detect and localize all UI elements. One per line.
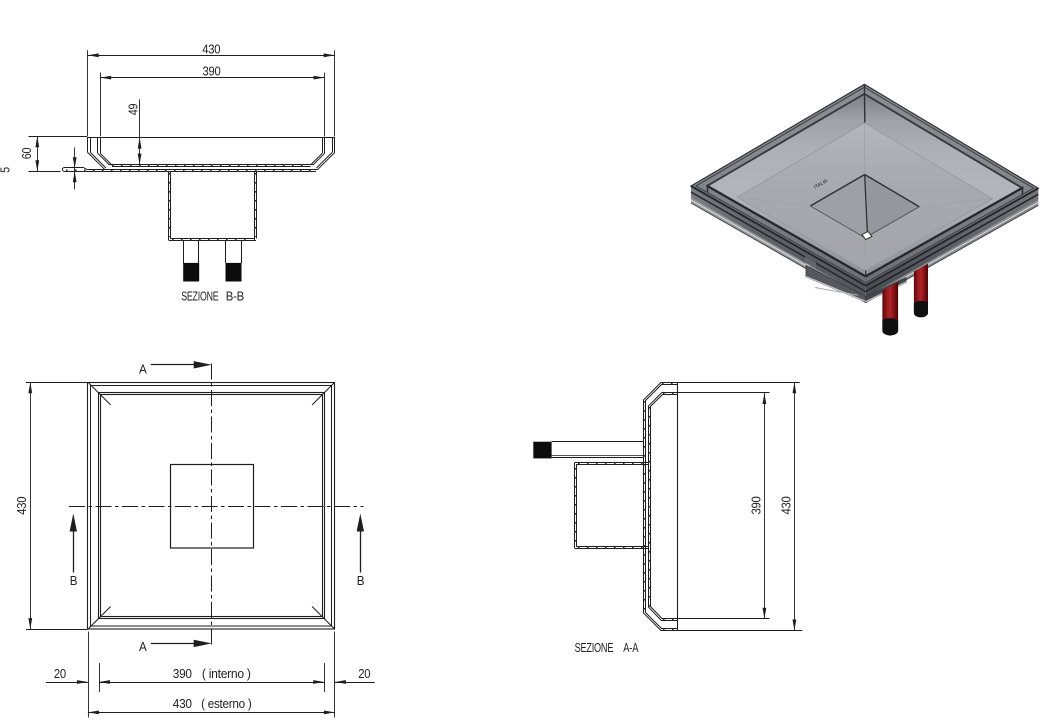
svg-text:430: 430 xyxy=(14,497,29,515)
svg-text:SEZIONE: SEZIONE xyxy=(575,640,614,655)
svg-text:430: 430 xyxy=(202,41,220,56)
svg-text:20: 20 xyxy=(54,666,66,681)
svg-text:5: 5 xyxy=(0,167,13,173)
svg-text:( interno ): ( interno ) xyxy=(202,666,251,681)
svg-text:390: 390 xyxy=(203,64,221,79)
svg-text:60: 60 xyxy=(19,148,34,160)
svg-text:430: 430 xyxy=(779,497,794,515)
svg-text:390: 390 xyxy=(173,666,192,681)
svg-text:A: A xyxy=(139,639,147,654)
svg-text:( esterno ): ( esterno ) xyxy=(201,696,251,711)
svg-text:B: B xyxy=(70,573,78,588)
svg-text:49: 49 xyxy=(126,104,141,116)
svg-text:SEZIONE: SEZIONE xyxy=(181,289,219,304)
svg-text:B-B: B-B xyxy=(226,289,245,304)
svg-text:430: 430 xyxy=(173,696,192,711)
svg-text:390: 390 xyxy=(749,497,764,515)
svg-text:B: B xyxy=(357,573,365,588)
svg-text:A: A xyxy=(139,361,147,376)
svg-text:20: 20 xyxy=(358,666,370,681)
svg-text:A-A: A-A xyxy=(623,640,638,655)
